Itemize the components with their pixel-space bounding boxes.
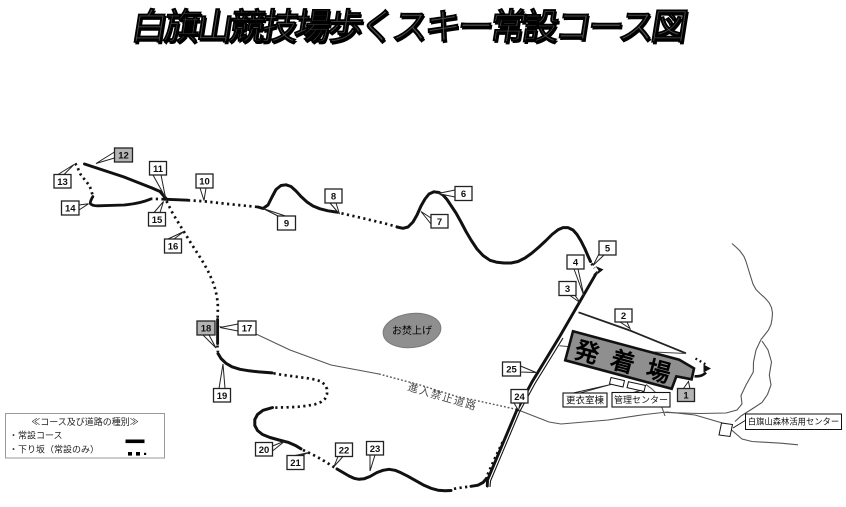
svg-text:23: 23: [370, 444, 381, 455]
svg-text:21: 21: [290, 458, 301, 469]
svg-text:進入禁止道路: 進入禁止道路: [406, 380, 479, 413]
svg-text:4: 4: [573, 258, 579, 269]
svg-text:19: 19: [217, 391, 228, 402]
svg-text:25: 25: [506, 365, 517, 376]
svg-text:9: 9: [284, 219, 289, 230]
svg-text:7: 7: [437, 217, 442, 228]
svg-text:≪コース及び道路の種別≫: ≪コース及び道路の種別≫: [31, 416, 139, 427]
svg-text:更衣室棟: 更衣室棟: [566, 395, 605, 407]
svg-text:・常設コース: ・常設コース: [9, 430, 63, 441]
svg-text:2: 2: [621, 311, 626, 322]
svg-text:20: 20: [259, 445, 270, 456]
svg-text:お焚上げ: お焚上げ: [392, 325, 432, 337]
svg-text:11: 11: [153, 164, 164, 175]
svg-text:13: 13: [57, 177, 68, 188]
svg-text:1: 1: [683, 391, 689, 402]
svg-text:5: 5: [605, 244, 611, 255]
svg-text:・下り坂（常設のみ）: ・下り坂（常設のみ）: [9, 444, 99, 455]
svg-text:白旗山競技場歩くスキー常設コース図: 白旗山競技場歩くスキー常設コース図: [129, 6, 689, 47]
svg-text:15: 15: [152, 215, 163, 226]
svg-text:白旗山森林活用センター: 白旗山森林活用センター: [748, 417, 839, 427]
svg-text:24: 24: [514, 392, 525, 403]
svg-text:17: 17: [242, 324, 253, 335]
svg-text:22: 22: [339, 445, 350, 456]
svg-text:16: 16: [168, 242, 179, 253]
svg-text:管理センター: 管理センター: [614, 394, 668, 405]
svg-text:8: 8: [331, 192, 336, 203]
svg-text:10: 10: [199, 177, 210, 188]
svg-text:12: 12: [118, 151, 129, 162]
svg-text:6: 6: [461, 189, 466, 200]
svg-text:14: 14: [65, 204, 76, 215]
svg-text:3: 3: [565, 284, 570, 295]
svg-text:18: 18: [201, 324, 212, 335]
